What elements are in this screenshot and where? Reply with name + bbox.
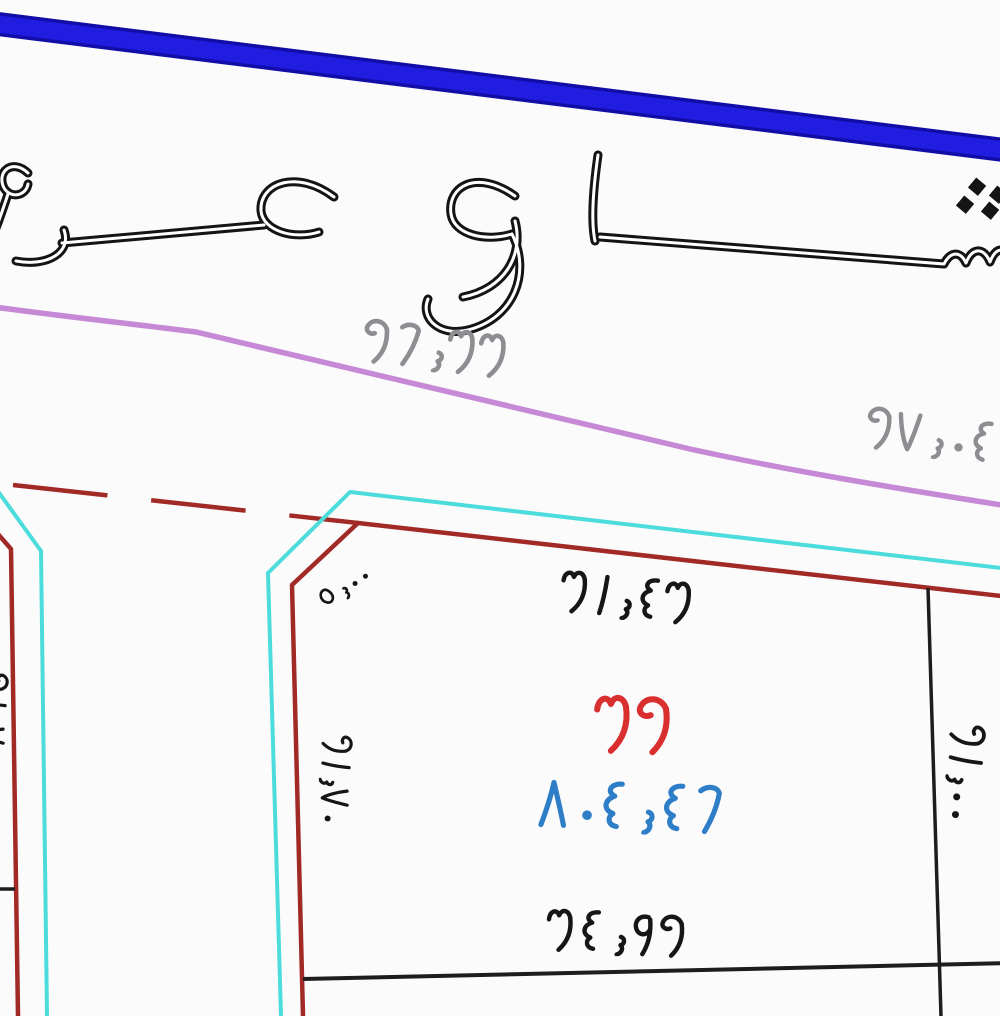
- plot-area: [532, 773, 723, 838]
- plot-front-dimension: [555, 563, 694, 627]
- plot-right-side-dimension: [943, 720, 992, 821]
- plot-number: [588, 687, 672, 758]
- plan-lines-layer: [0, 0, 1000, 1016]
- street-edge-line: [0, 23, 1000, 151]
- sheen-dots-icon: [956, 178, 1000, 220]
- survey-plan: { "street": { "label": "شارع عرض", "trun…: [0, 0, 1000, 1016]
- plot-rear-line: [303, 963, 1000, 979]
- curb-dim-right: [859, 399, 998, 467]
- neighbor-plot-red-line: [0, 527, 18, 1016]
- plot-chamfer-dimension: [309, 557, 373, 614]
- plot-divider-line: [928, 588, 941, 1016]
- plot-left-side-dimension: [317, 731, 358, 823]
- plot-rear-dimension: [542, 902, 687, 959]
- neighbor-side-dimension-partial: [0, 669, 13, 761]
- setback-dashed-line: [13, 485, 358, 523]
- curb-dim-left: [355, 311, 508, 381]
- street-name-calligraphy: [0, 0, 1000, 1016]
